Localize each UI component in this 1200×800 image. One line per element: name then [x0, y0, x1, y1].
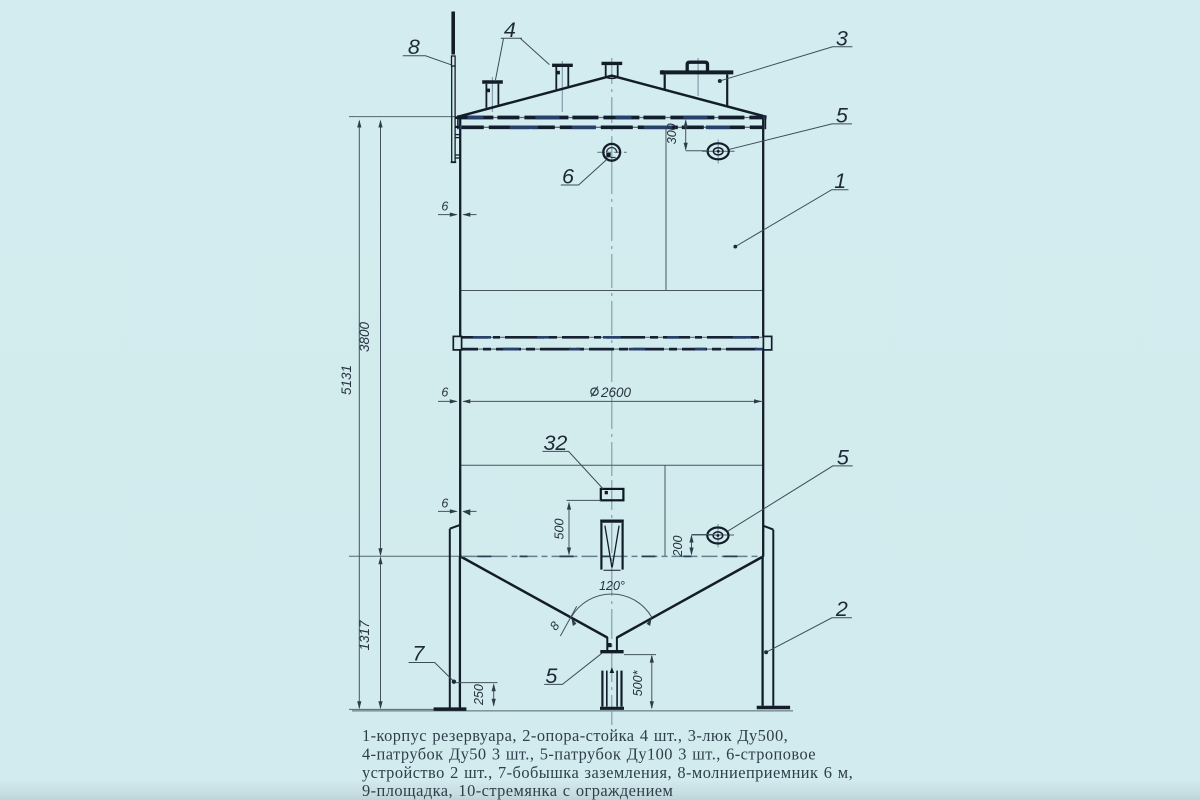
svg-text:1: 1	[834, 169, 846, 193]
svg-text:5: 5	[836, 103, 849, 127]
svg-text:3800: 3800	[357, 321, 372, 352]
svg-text:1-корпус резервуара, 2-опора-с: 1-корпус резервуара, 2-опора-стойка 4 шт…	[362, 726, 788, 745]
svg-text:8: 8	[408, 35, 420, 59]
svg-text:7: 7	[412, 642, 425, 666]
svg-text:6: 6	[562, 165, 574, 189]
svg-text:250: 250	[472, 684, 486, 706]
svg-text:9-площадка, 10-стремянка с огр: 9-площадка, 10-стремянка с ограждением	[362, 781, 673, 800]
svg-text:3: 3	[836, 26, 848, 50]
svg-text:300: 300	[665, 123, 679, 144]
svg-text:5: 5	[837, 445, 850, 469]
svg-text:2: 2	[835, 597, 848, 621]
svg-text:6: 6	[441, 496, 448, 510]
svg-text:2600: 2600	[600, 385, 632, 400]
svg-text:5: 5	[545, 664, 558, 688]
svg-text:200: 200	[671, 536, 685, 558]
svg-text:4-патрубок Ду50 3 шт., 5-патру: 4-патрубок Ду50 3 шт., 5-патрубок Ду100 …	[362, 744, 816, 763]
svg-text:6: 6	[441, 386, 448, 400]
svg-text:устройство 2 шт., 7-бобышка за: устройство 2 шт., 7-бобышка заземления, …	[362, 763, 853, 782]
svg-text:500: 500	[552, 519, 566, 540]
svg-text:32: 32	[543, 431, 567, 455]
svg-text:4: 4	[504, 18, 516, 42]
svg-text:5131: 5131	[339, 365, 354, 395]
svg-text:1317: 1317	[357, 620, 372, 651]
svg-text:6: 6	[441, 199, 448, 213]
svg-text:500*: 500*	[631, 669, 645, 696]
svg-text:120°: 120°	[599, 579, 625, 593]
